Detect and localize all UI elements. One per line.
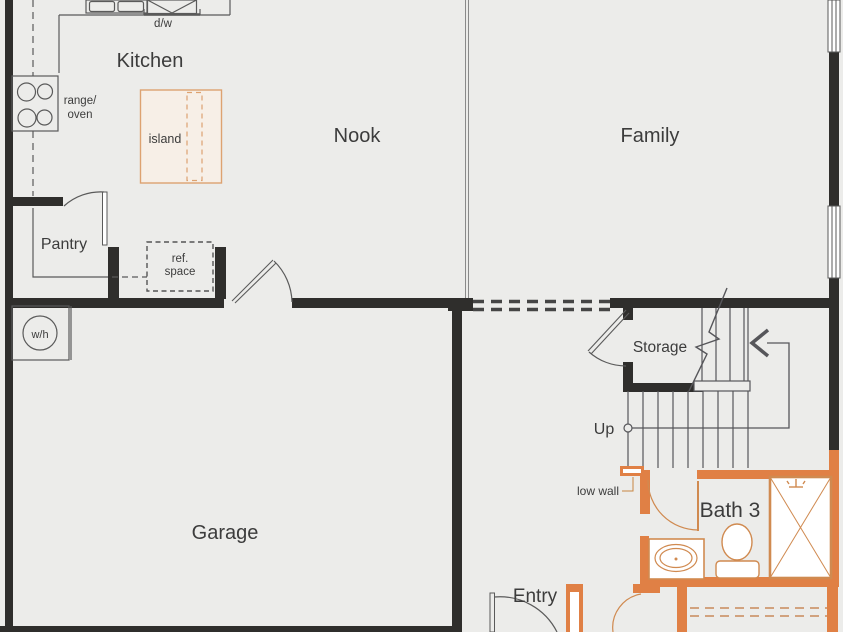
range-oven-label-line1: range/	[64, 95, 97, 107]
room-label-nook: Nook	[334, 125, 382, 147]
vanity-sink-icon	[649, 539, 704, 579]
room-label-entry: Entry	[513, 586, 558, 607]
stair-treads-lower	[628, 391, 748, 468]
wall-segment	[640, 470, 650, 514]
window-icon	[828, 0, 840, 52]
closet-door	[613, 594, 641, 632]
ref-space-label-line2: space	[165, 266, 196, 278]
room-label-pantry: Pantry	[41, 236, 87, 253]
up-label: Up	[594, 421, 615, 438]
wall-segment	[633, 584, 660, 593]
island-label: island	[149, 132, 182, 146]
closet-shelf-dashes	[690, 608, 827, 616]
wall-segment	[452, 298, 462, 632]
cased-opening	[473, 302, 610, 310]
stairs	[624, 288, 789, 468]
window-icon	[828, 206, 840, 278]
wall-segment	[623, 298, 633, 320]
wall-segment	[0, 626, 453, 632]
ref-space-label-line1: ref.	[172, 253, 189, 265]
wall-segment	[829, 51, 839, 207]
stair-landing-rail	[694, 381, 750, 391]
room-label-bath3: Bath 3	[700, 499, 761, 522]
toilet-icon	[716, 524, 759, 578]
range-oven-icon	[12, 76, 58, 131]
stair-direction-arrowhead	[752, 330, 768, 356]
stair-treads-upper	[702, 308, 748, 381]
entry-pillar-inner	[570, 592, 579, 632]
low-wall-inner	[623, 469, 641, 473]
low-wall-leader-line	[622, 477, 633, 491]
up-marker	[624, 424, 632, 432]
wall-segment	[827, 587, 838, 632]
room-label-garage: Garage	[192, 522, 259, 544]
water-heater-label: w/h	[30, 329, 48, 341]
wall-segment	[5, 197, 63, 206]
wall-segment	[640, 536, 649, 587]
dishwasher-icon	[144, 0, 200, 15]
room-label-storage: Storage	[633, 339, 687, 356]
room-label-family: Family	[621, 125, 680, 147]
wall-segment	[610, 298, 839, 308]
dishwasher-label: d/w	[154, 18, 173, 30]
wall-segment	[829, 277, 839, 450]
room-label-kitchen: Kitchen	[117, 50, 184, 72]
wall-segment	[108, 247, 119, 299]
wall-segment	[448, 298, 473, 311]
range-oven-label-line2: oven	[68, 109, 93, 121]
wall-segment	[215, 247, 226, 299]
floor-plan: Kitchen Nook Family Pantry Garage Storag…	[0, 0, 843, 632]
garage-entry-door	[232, 260, 292, 303]
wall-segment	[677, 587, 687, 632]
exterior-interior-walls	[0, 0, 839, 632]
wall-segment	[292, 298, 462, 308]
room-divider-line	[466, 0, 469, 298]
bath3-door	[648, 480, 698, 531]
sink-icon	[86, 0, 147, 13]
shower-icon	[770, 477, 831, 578]
low-wall-label: low wall	[577, 484, 619, 498]
storage-door	[588, 310, 629, 366]
